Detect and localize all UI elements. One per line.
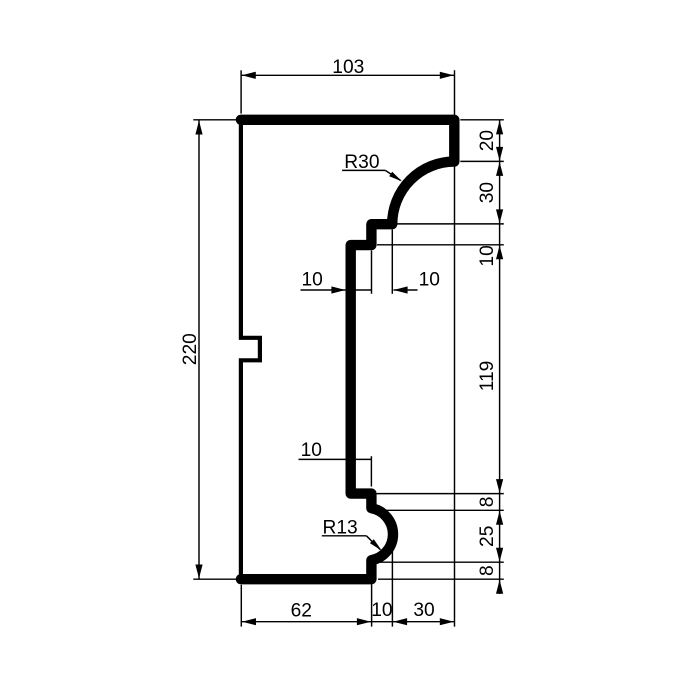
svg-text:10: 10 [419,270,440,291]
svg-text:10: 10 [477,245,498,266]
svg-text:R30: R30 [344,152,379,173]
svg-text:10: 10 [371,600,392,621]
svg-text:30: 30 [477,182,498,203]
svg-text:25: 25 [477,526,498,547]
svg-text:8: 8 [477,497,498,508]
svg-text:10: 10 [302,270,323,291]
svg-text:8: 8 [477,565,498,576]
svg-text:62: 62 [291,600,312,621]
svg-text:10: 10 [301,440,322,461]
svg-text:119: 119 [477,361,498,392]
svg-text:20: 20 [477,130,498,151]
svg-text:220: 220 [180,333,201,365]
svg-text:103: 103 [332,57,364,78]
svg-text:30: 30 [413,600,434,621]
svg-text:R13: R13 [323,518,358,539]
